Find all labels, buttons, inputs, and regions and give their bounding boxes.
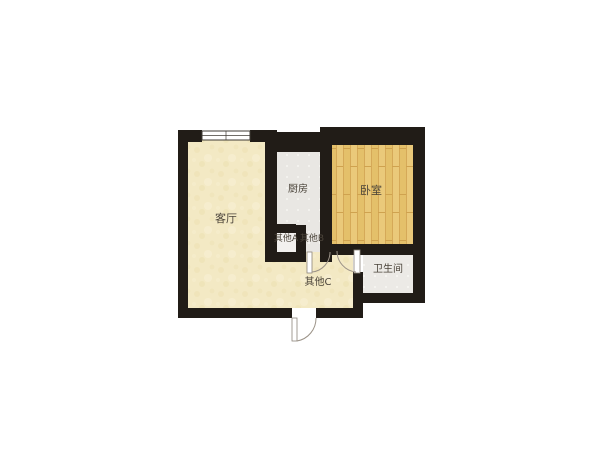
door-bathroom-leaf [354,250,360,273]
wall-kitchen-bottom [277,224,296,233]
wall-bathroom-bottom [353,293,425,303]
room-bedroom-label: 卧室 [360,183,382,197]
wall-right-outer [413,127,425,303]
wall-bottom-right-segment [316,308,363,318]
room-other-c-label: 其他C [305,275,332,288]
room-other-a-label: 其他A [274,232,299,244]
wall-bottom-left-segment [178,308,292,318]
floorplan-page: 客厅 厨房 卧室 其他A 其他B 其他C 卫生间 [0,0,600,450]
door-entrance-leaf [292,318,297,341]
room-bathroom-label: 卫生间 [373,262,403,275]
wall-bedroom-bottom [320,244,425,255]
floorplan-canvas: 客厅 厨房 卧室 其他A 其他B 其他C 卫生间 [0,0,600,450]
window-living-room [202,131,250,140]
wall-other-a-bottom [265,252,306,262]
room-kitchen-label: 厨房 [288,182,308,195]
door-hall-leaf [307,252,312,273]
wall-left-outer [178,130,188,318]
wall-top-bedroom [320,127,425,145]
room-other-c-floor-corner [332,255,353,262]
room-living-label: 客厅 [215,211,237,225]
room-other-b-label: 其他B [300,232,324,244]
wall-top-left-of-window [178,130,202,142]
